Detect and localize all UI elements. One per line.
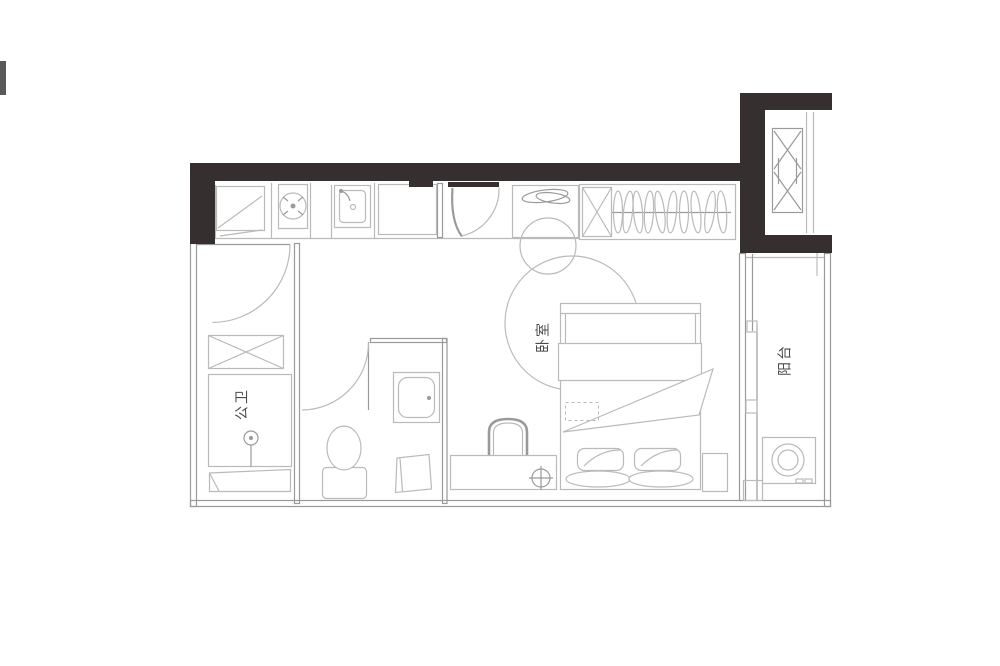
structural-walls	[0, 61, 832, 253]
floor-drain-icon	[529, 466, 553, 490]
kitchen-sink-icon	[335, 186, 371, 228]
label-bathroom: 公卫	[234, 388, 250, 420]
label-bedroom: 卧室	[535, 321, 551, 353]
bedroom	[451, 218, 728, 492]
console-cabinet	[513, 186, 579, 238]
sliding-door-icon	[746, 254, 757, 500]
cooktop-icon	[279, 185, 308, 229]
bath-mat-icon	[396, 455, 432, 493]
edge-mark	[0, 61, 6, 95]
washbasin-icon	[394, 373, 440, 423]
wardrobe-icon	[580, 185, 736, 240]
floorplan-svg: 公卫 卧室 阳台	[0, 0, 1000, 666]
plant-icon	[521, 187, 570, 205]
double-bed-icon	[559, 304, 714, 490]
shower-icon	[209, 375, 292, 468]
kitchen-cabinet	[379, 185, 437, 235]
shower-bench-icon	[210, 470, 291, 492]
elevator-icon	[773, 112, 814, 233]
nightstand-icon	[703, 454, 728, 492]
door-lintel	[409, 181, 433, 187]
toilet-icon	[323, 426, 367, 499]
wet-room-door-icon	[302, 342, 369, 410]
bathroom	[209, 245, 440, 499]
duct-box	[209, 336, 284, 369]
fridge-icon	[217, 187, 265, 237]
floorplan-image: 公卫 卧室 阳台	[0, 0, 1000, 666]
arch-mirror-icon	[489, 419, 527, 455]
entry-door-lintel	[448, 182, 499, 187]
label-balcony: 阳台	[777, 344, 793, 376]
bathroom-door-icon	[213, 245, 291, 323]
washing-machine-icon	[763, 438, 816, 484]
entry-door-icon	[452, 188, 499, 237]
stool-icon	[520, 218, 576, 274]
